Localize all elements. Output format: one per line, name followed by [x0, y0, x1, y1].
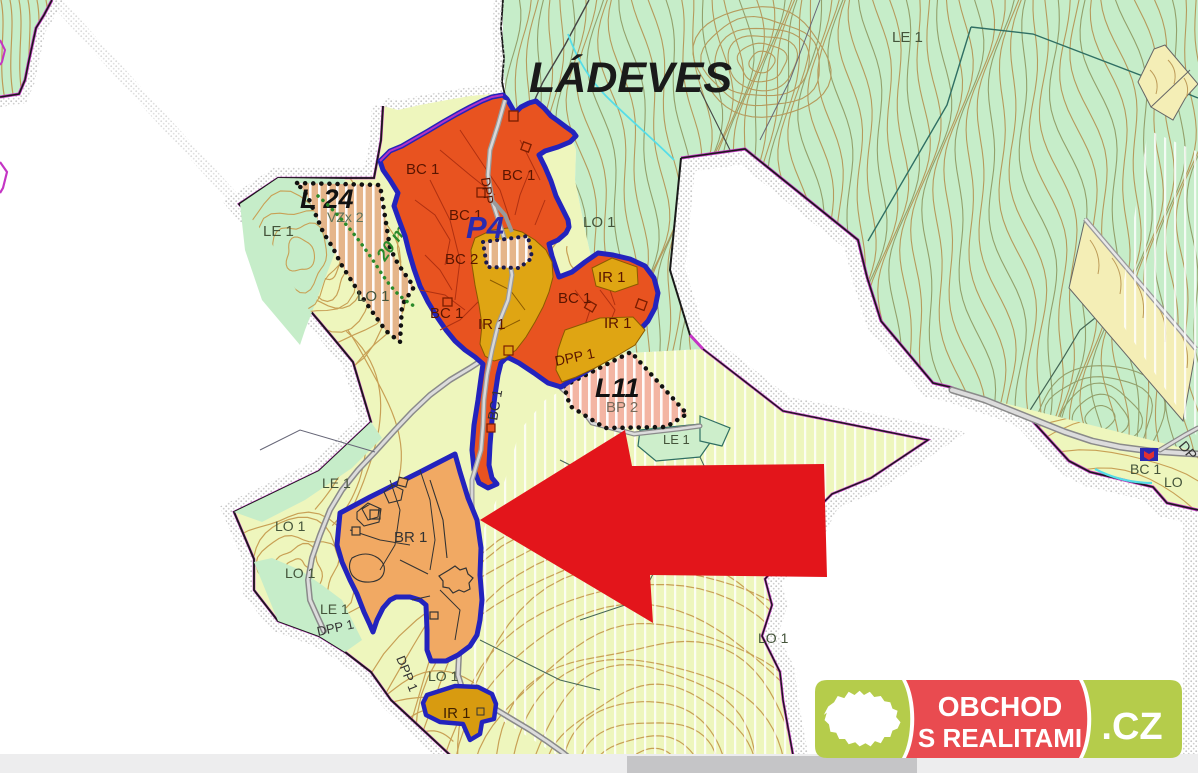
svg-text:.CZ: .CZ: [1101, 706, 1162, 748]
svg-text:LO 1: LO 1: [275, 518, 306, 534]
svg-text:LO 1: LO 1: [583, 214, 616, 231]
svg-text:BC 1: BC 1: [558, 290, 591, 307]
svg-text:LO 1: LO 1: [428, 668, 459, 684]
svg-text:OBCHOD: OBCHOD: [938, 691, 1062, 722]
svg-text:IR 1: IR 1: [604, 315, 632, 332]
svg-text:LO 1: LO 1: [357, 288, 390, 305]
svg-text:LO 1: LO 1: [285, 565, 316, 581]
svg-text:IR 1: IR 1: [478, 316, 506, 333]
svg-text:BR 1: BR 1: [394, 529, 427, 546]
svg-text:LO 1: LO 1: [758, 630, 789, 646]
svg-text:LO: LO: [1164, 474, 1183, 490]
svg-text:BP 2: BP 2: [606, 399, 638, 416]
svg-text:P4: P4: [466, 210, 504, 245]
svg-text:BC 2: BC 2: [445, 251, 478, 268]
svg-text:LE 1: LE 1: [663, 432, 690, 447]
svg-text:IR 1: IR 1: [443, 705, 471, 722]
svg-text:IR 1: IR 1: [598, 269, 626, 286]
svg-text:LÁDEVES: LÁDEVES: [529, 54, 732, 102]
svg-text:LE 1: LE 1: [320, 601, 349, 617]
svg-text:BC 1: BC 1: [406, 161, 439, 178]
svg-text:LE 1: LE 1: [892, 29, 923, 46]
svg-text:LE 1: LE 1: [263, 223, 294, 240]
svg-text:BC 1: BC 1: [502, 167, 535, 184]
svg-text:BC 1: BC 1: [430, 305, 463, 322]
svg-text:LE 1: LE 1: [322, 475, 351, 491]
svg-text:S REALITAMI: S REALITAMI: [918, 723, 1082, 753]
svg-text:BC 1: BC 1: [1130, 461, 1161, 477]
